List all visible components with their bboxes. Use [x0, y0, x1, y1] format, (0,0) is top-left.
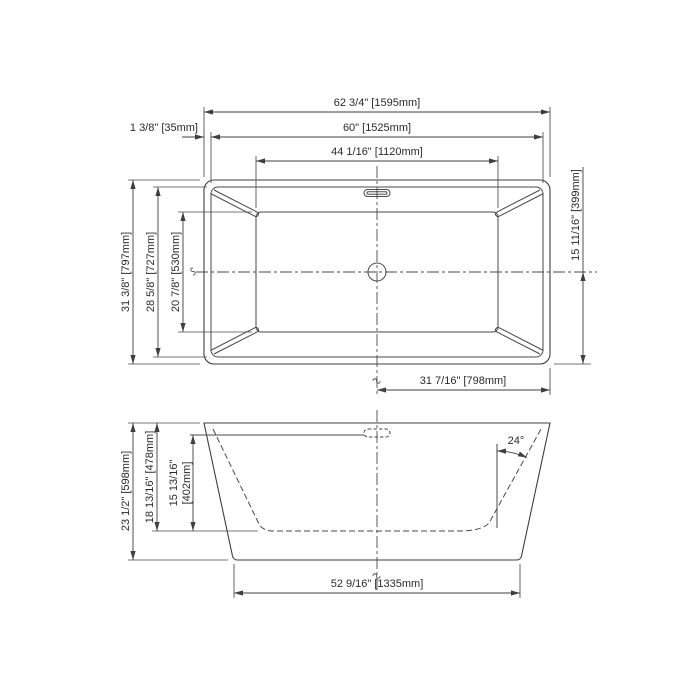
dim-basin-width: 44 1/16" [1120mm] — [331, 146, 423, 158]
dim-base-length: 52 9/16" [1335mm] — [331, 578, 424, 590]
dim-overall-width: 62 3/4" [1595mm] — [334, 97, 420, 109]
bathtub-technical-drawing: 62 3/4" [1595mm] 1 3/8" [35mm] 60" [1525… — [0, 0, 700, 700]
dim-ledge-to-floor-mm: [402mm] — [181, 462, 193, 505]
dim-overall-depth: 31 3/8" [797mm] — [120, 232, 132, 312]
centerline-symbol — [373, 379, 380, 384]
corner-edge-top-right — [496, 190, 544, 216]
dim-ledge-to-floor-inches: 15 13/16" — [168, 460, 180, 507]
dim-inner-width: 60" [1525mm] — [343, 122, 411, 134]
dim-drain-to-end: 31 7/16" [798mm] — [420, 375, 506, 387]
angle-arc — [497, 451, 527, 458]
corner-edge-bottom-right — [496, 327, 544, 354]
top-view-dimensions: 62 3/4" [1595mm] 1 3/8" [35mm] 60" [1525… — [120, 97, 591, 395]
dim-rim-to-basin-floor: 18 13/16" [478mm] — [144, 431, 156, 524]
drawing-sheet: 62 3/4" [1595mm] 1 3/8" [35mm] 60" [1525… — [0, 0, 700, 700]
dim-overall-height: 23 1/2" [598mm] — [120, 451, 132, 531]
centerline-symbol — [191, 268, 196, 275]
corner-edge-top-left — [211, 190, 259, 217]
dim-rim-offset: 1 3/8" [35mm] — [130, 122, 198, 134]
side-view: 24° — [190, 410, 550, 590]
dim-basin-depth: 20 7/8" [530mm] — [170, 232, 182, 312]
dim-inner-depth: 28 5/8" [727mm] — [145, 232, 157, 312]
corner-edge-bottom-left — [211, 327, 259, 354]
dim-wall-angle: 24° — [508, 435, 525, 447]
top-view — [191, 166, 597, 396]
side-view-dimensions: 23 1/2" [598mm] 18 13/16" [478mm] 15 13/… — [120, 423, 520, 598]
dim-center-to-end: 15 11/16" [399mm] — [570, 169, 582, 261]
